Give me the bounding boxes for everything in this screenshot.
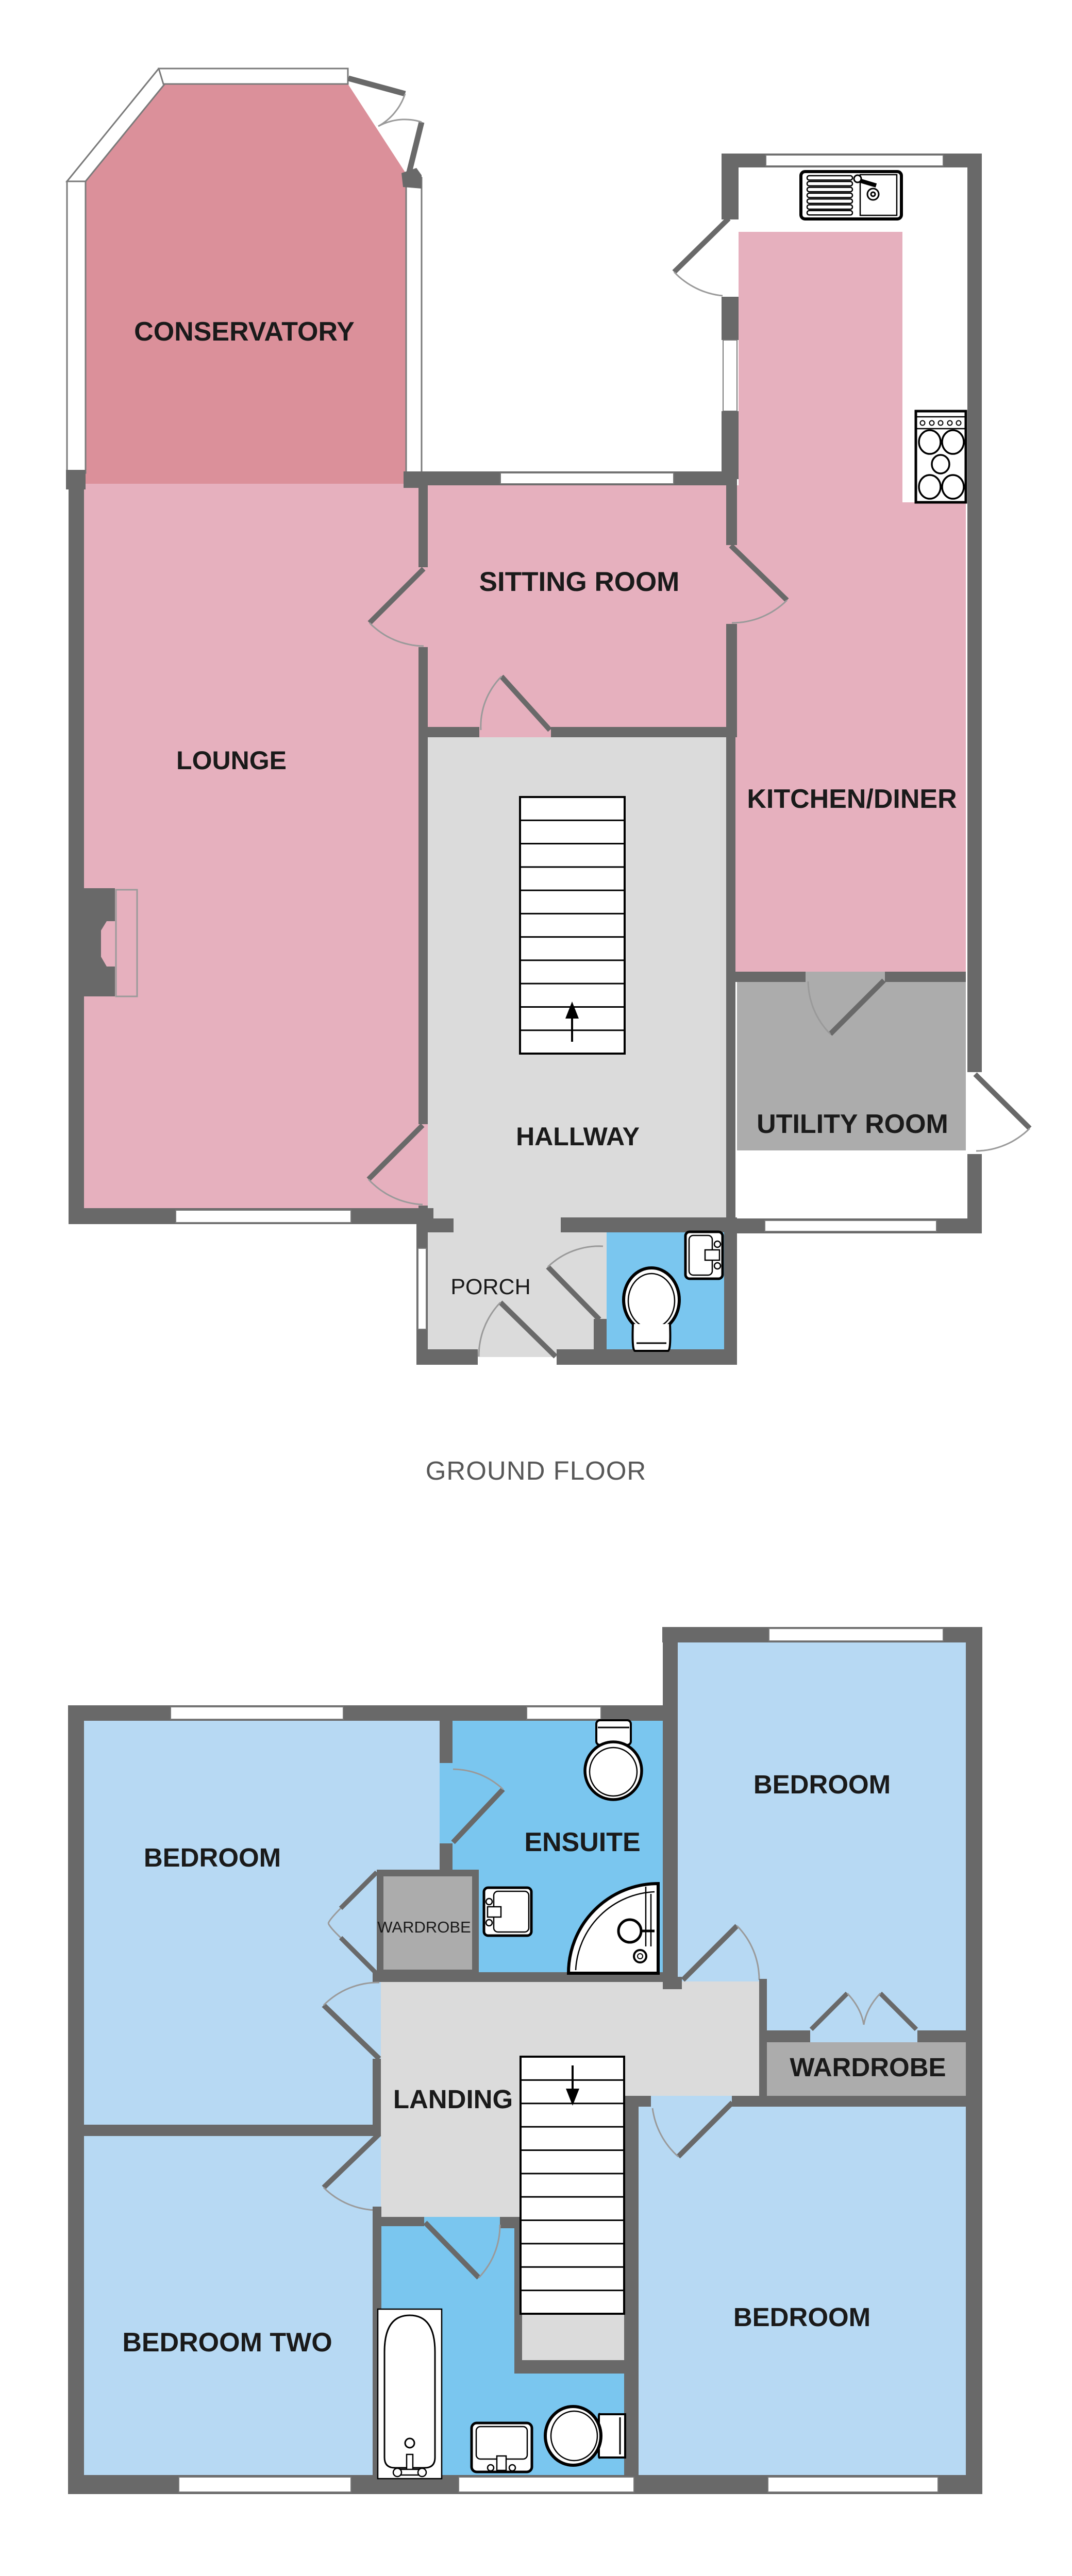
svg-text:ENSUITE: ENSUITE [524, 1827, 640, 1857]
svg-text:SITTING ROOM: SITTING ROOM [479, 567, 680, 597]
svg-text:BEDROOM: BEDROOM [753, 1770, 891, 1799]
svg-text:WARDROBE: WARDROBE [790, 2053, 946, 2082]
svg-text:LOUNGE: LOUNGE [176, 746, 287, 775]
svg-text:LANDING: LANDING [393, 2084, 513, 2114]
svg-text:HALLWAY: HALLWAY [516, 1122, 640, 1151]
svg-text:UTILITY ROOM: UTILITY ROOM [757, 1109, 948, 1139]
svg-text:KITCHEN/DINER: KITCHEN/DINER [747, 784, 957, 814]
svg-text:BEDROOM TWO: BEDROOM TWO [122, 2328, 332, 2358]
svg-text:BEDROOM: BEDROOM [733, 2302, 870, 2332]
svg-text:CONSERVATORY: CONSERVATORY [134, 317, 355, 347]
svg-text:PORCH: PORCH [450, 1275, 530, 1299]
svg-text:BEDROOM: BEDROOM [144, 1843, 281, 1872]
svg-text:GROUND FLOOR: GROUND FLOOR [426, 1456, 647, 1485]
svg-text:WARDROBE: WARDROBE [377, 1918, 471, 1936]
